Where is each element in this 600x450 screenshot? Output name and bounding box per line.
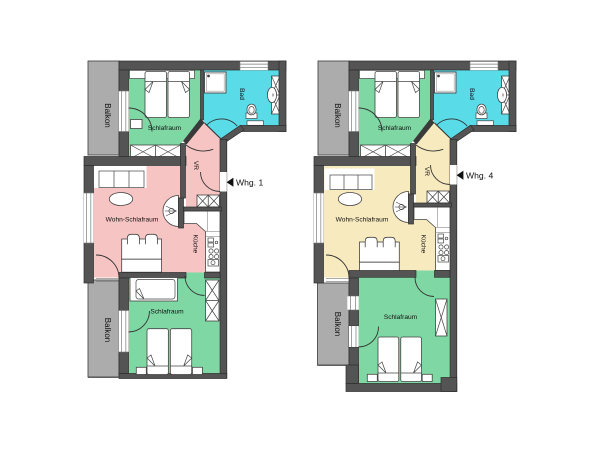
svg-text:Whg. 4: Whg. 4 [466, 171, 493, 181]
svg-text:Balkon: Balkon [103, 103, 112, 127]
svg-text:Balkon: Balkon [103, 318, 112, 342]
svg-text:VR: VR [423, 167, 430, 176]
svg-text:Schlafraum: Schlafraum [378, 125, 412, 132]
svg-text:Küche: Küche [420, 235, 427, 254]
svg-text:VR: VR [192, 161, 199, 170]
svg-text:Whg. 1: Whg. 1 [236, 178, 263, 188]
svg-text:Bad: Bad [238, 88, 245, 100]
svg-text:Schlafraum: Schlafraum [150, 309, 184, 316]
svg-text:Bad: Bad [468, 88, 475, 100]
svg-text:Wohn-Schlafraum: Wohn-Schlafraum [106, 217, 159, 224]
svg-text:Schlafraum: Schlafraum [384, 314, 418, 321]
svg-text:Balkon: Balkon [333, 312, 342, 336]
svg-text:Wohn-Schlafraum: Wohn-Schlafraum [336, 217, 389, 224]
svg-text:Balkon: Balkon [333, 103, 342, 127]
svg-text:Küche: Küche [192, 235, 199, 254]
svg-text:Schlafraum: Schlafraum [148, 125, 182, 132]
